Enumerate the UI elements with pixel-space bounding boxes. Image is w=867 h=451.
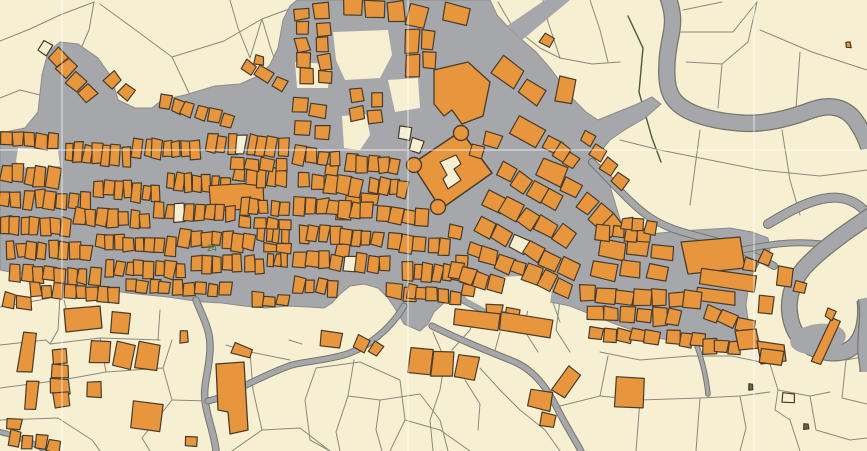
svg-text:24: 24 [207, 243, 217, 253]
